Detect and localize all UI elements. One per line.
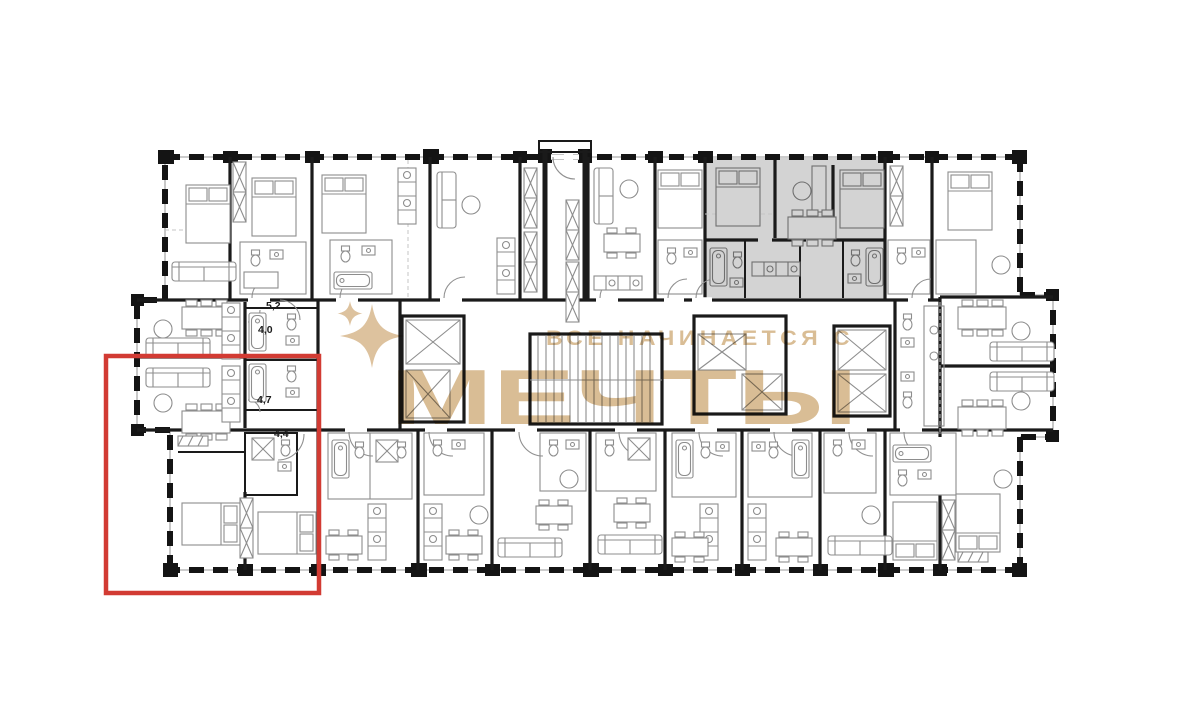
watermark-line1: ВСЕ НАЧИНАЕТСЯ С xyxy=(546,327,854,350)
dim-4-0: 4,0 xyxy=(258,324,273,336)
furniture-right-apartments xyxy=(901,300,1054,436)
dim-4-4: 4,4 xyxy=(274,428,289,440)
furniture-bottom-band xyxy=(326,433,1012,562)
watermark-line2: МЕЧТЫ xyxy=(390,353,858,441)
floor-plan: 5,2 4,0 4,7 4,4 ВСЕ НАЧИНАЕТСЯ С МЕЧТЫ xyxy=(0,0,1180,727)
floorplan-page: 5,2 4,0 4,7 4,4 ВСЕ НАЧИНАЕТСЯ С МЕЧТЫ xyxy=(0,0,1180,727)
dim-5-2: 5,2 xyxy=(266,300,281,312)
watermark: ВСЕ НАЧИНАЕТСЯ С МЕЧТЫ xyxy=(338,301,859,441)
dim-4-7: 4,7 xyxy=(257,394,272,406)
